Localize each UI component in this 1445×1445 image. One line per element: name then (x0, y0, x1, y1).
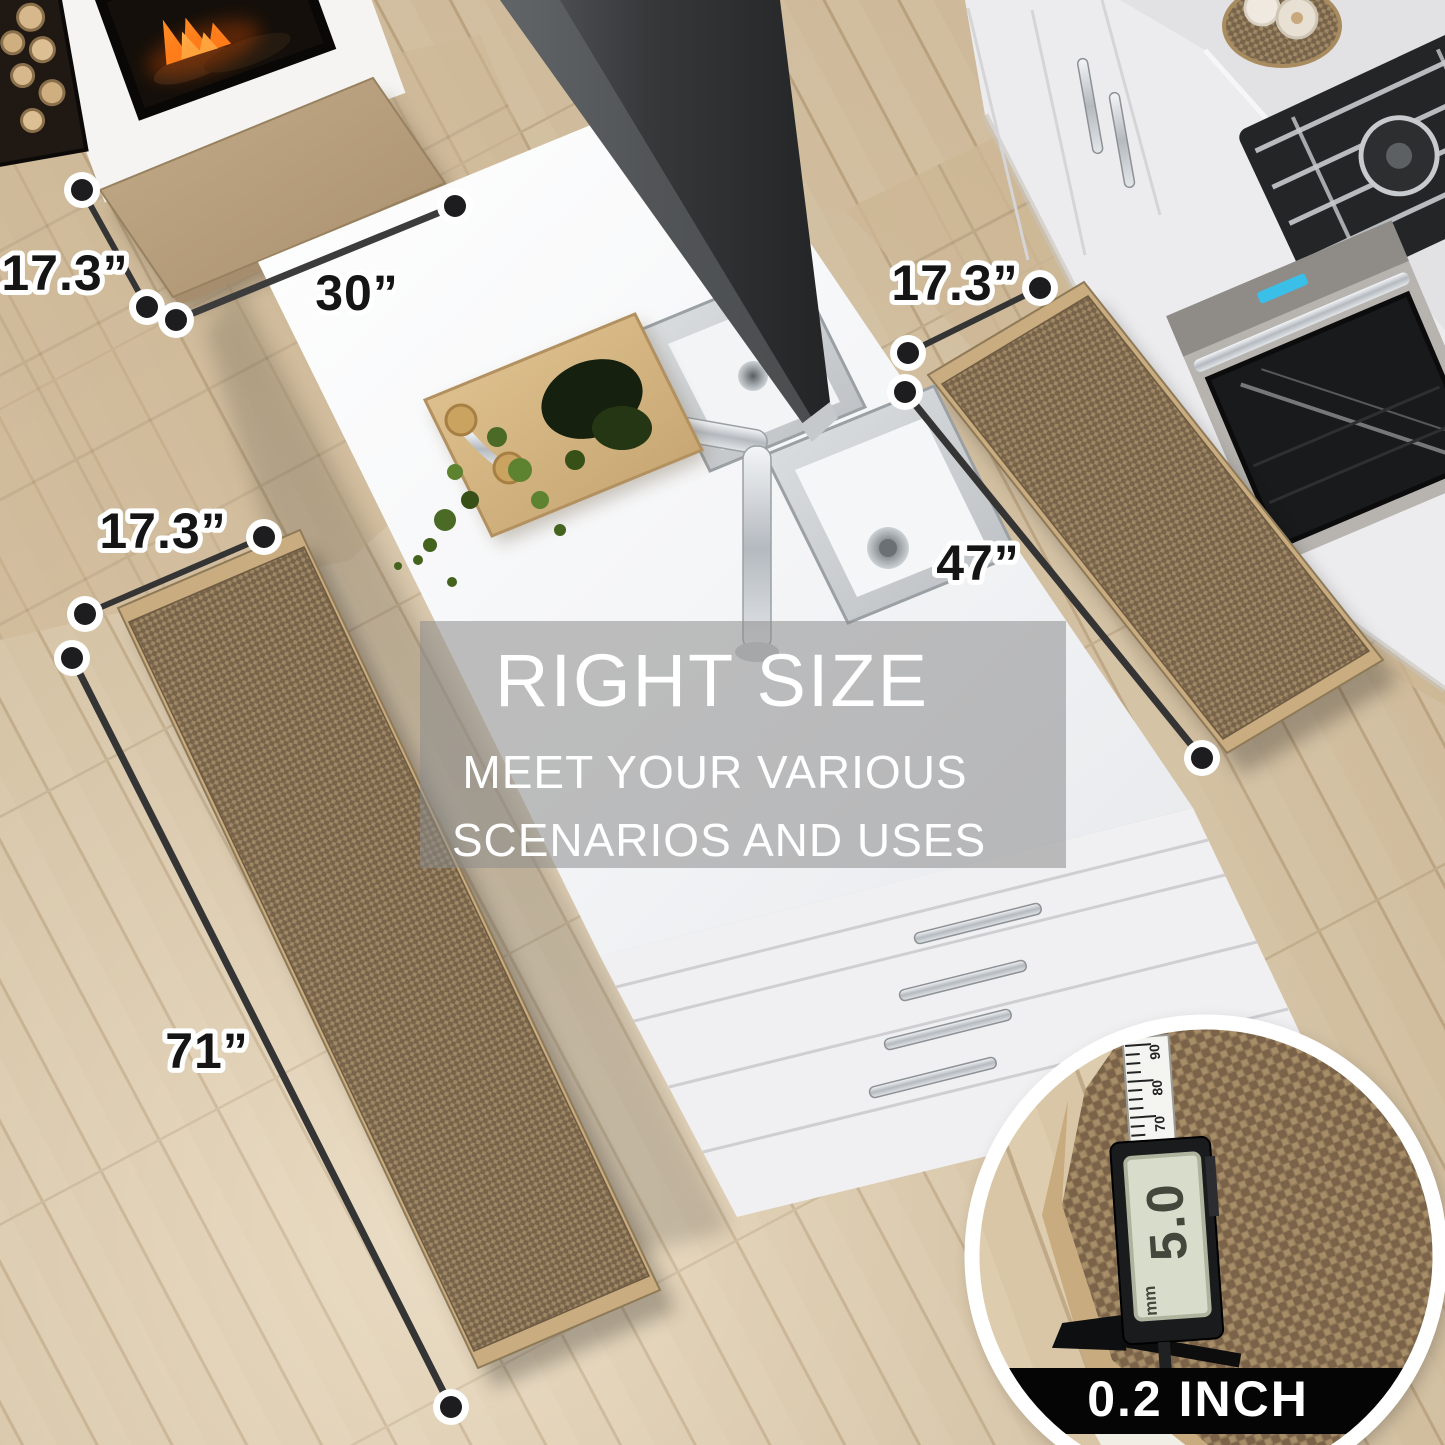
overlay-subtitle-2: SCENARIOS AND USES (452, 814, 986, 866)
caliper-reading: 5.0 (1136, 1180, 1199, 1262)
mezzaluna-handle (446, 405, 476, 435)
thickness-label: 0.2 INCH (1087, 1371, 1309, 1427)
overlay-subtitle-1: MEET YOUR VARIOUS (462, 746, 967, 798)
kitchen-scene: RIGHT SIZE MEET YOUR VARIOUS SCENARIOS A… (0, 0, 1445, 1445)
sink-mat-length-label: 47” (936, 535, 1020, 591)
ruler-mark-90: 90 (1146, 1043, 1163, 1060)
caliper-unit: mm (1140, 1285, 1161, 1316)
candle-tray (1224, 0, 1340, 66)
hearth-mat-width-label: 30” (315, 265, 399, 321)
product-infographic: RIGHT SIZE MEET YOUR VARIOUS SCENARIOS A… (0, 0, 1445, 1445)
overlay-title: RIGHT SIZE (495, 639, 929, 722)
ruler-mark-70: 70 (1151, 1115, 1168, 1132)
runner-mat-depth-label: 17.3” (99, 503, 226, 559)
ruler-mark-80: 80 (1149, 1079, 1166, 1096)
overlay-band: RIGHT SIZE MEET YOUR VARIOUS SCENARIOS A… (420, 621, 1066, 868)
runner-mat-length-label: 71” (165, 1023, 249, 1079)
sink-mat-depth-label: 17.3” (891, 255, 1018, 311)
hearth-mat-depth-label: 17.3” (1, 245, 128, 301)
